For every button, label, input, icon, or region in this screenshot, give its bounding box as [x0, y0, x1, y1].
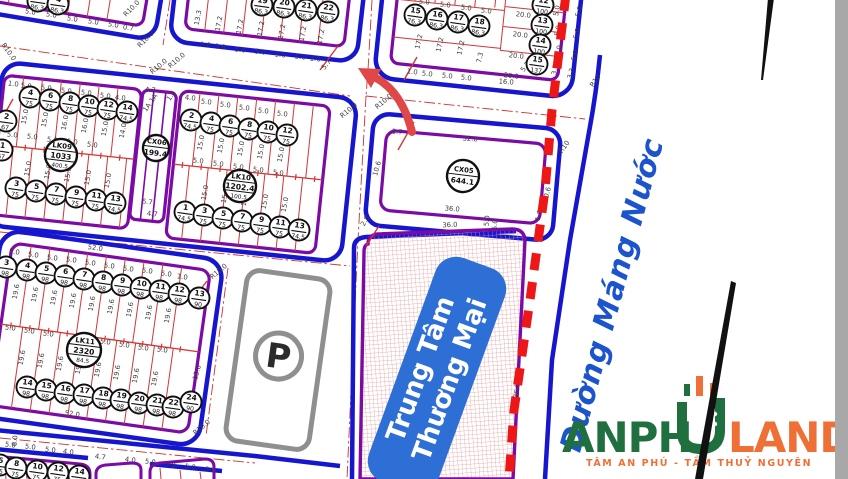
dimension-label: 20.0: [512, 30, 528, 40]
dimension-label: 5.0: [156, 345, 168, 354]
dimension-label: 16.0: [60, 115, 71, 131]
plot-circle: 1576.3: [403, 3, 427, 27]
svg-text:21: 21: [301, 0, 313, 10]
svg-text:67: 67: [1, 124, 10, 132]
svg-text:98: 98: [134, 406, 143, 414]
svg-text:75: 75: [103, 112, 112, 120]
dimension-label: 1A 1A: [141, 92, 159, 113]
dimension-label: 36.0: [442, 221, 458, 230]
dimension-label: 15.0: [196, 135, 207, 151]
dimension-label: 4.7: [146, 209, 158, 218]
dimension-label: 15.0: [256, 144, 267, 160]
dimension-label: 6.7: [141, 197, 153, 206]
dimension-label: 5.0: [252, 165, 264, 174]
svg-text:98: 98: [1, 270, 10, 278]
dimension-label: 5.0: [491, 219, 500, 230]
svg-text:75: 75: [51, 197, 60, 205]
dimension-label: 5.0: [46, 253, 58, 262]
dimension-label: 1.0: [309, 54, 321, 63]
dimension-label: 19.6: [144, 305, 155, 321]
dimension-label: 5.0: [122, 264, 134, 273]
dimension-label: 5.0: [65, 255, 77, 264]
svg-text:15: 15: [410, 5, 422, 15]
svg-text:74.5: 74.5: [291, 233, 306, 242]
svg-text:24: 24: [186, 392, 198, 402]
svg-text:75: 75: [225, 129, 234, 137]
dimension-label: 15.0: [103, 173, 114, 189]
plot-circle: 975: [64, 185, 88, 209]
plot-circle: 1886.3: [467, 14, 491, 38]
svg-text:13: 13: [294, 220, 306, 230]
dimension-label: R10.0: [122, 0, 142, 18]
dimension-label: 5.0: [8, 247, 20, 256]
svg-text:75: 75: [199, 218, 208, 226]
black-line-marks: [695, 0, 774, 479]
dimension-label: 5.0: [574, 5, 585, 18]
plot-circle: 1786.3: [446, 10, 470, 34]
dimension-label: 19.6: [11, 284, 22, 300]
svg-text:14: 14: [535, 35, 547, 45]
svg-text:20: 20: [134, 393, 146, 403]
svg-text:75: 75: [237, 224, 246, 232]
svg-text:13: 13: [537, 15, 549, 25]
plot-circle: 2086.3: [272, 0, 296, 19]
dimension-label: 5.0: [274, 50, 286, 59]
dimension-label: 5.0: [219, 100, 231, 109]
dimension-label: 17.2: [298, 26, 309, 42]
plot-circle: 2186.3: [294, 0, 318, 22]
dimension-label: 5.0: [441, 71, 453, 80]
svg-text:21: 21: [152, 395, 164, 405]
svg-text:74.5: 74.5: [177, 215, 192, 224]
svg-text:15: 15: [41, 380, 53, 390]
dimension-label: 5.0: [42, 329, 54, 338]
svg-text:10: 10: [136, 278, 148, 288]
svg-text:98: 98: [22, 273, 31, 281]
dimension-label: 5.0: [572, 27, 583, 40]
dimension-label: 17.2: [316, 29, 327, 45]
dimension-label: 15.0: [20, 109, 31, 125]
svg-text:98: 98: [98, 285, 107, 293]
svg-text:13: 13: [194, 288, 206, 298]
dimension-label: 15.0: [200, 185, 211, 201]
svg-text:75: 75: [71, 200, 80, 208]
svg-text:17: 17: [79, 385, 91, 395]
dimension-label: 19.6: [49, 290, 60, 306]
svg-text:98: 98: [117, 288, 126, 296]
dimension-label: 5.0: [160, 269, 172, 278]
dimension-label: 17.2: [214, 16, 225, 32]
plot-circle: 1275: [275, 123, 299, 147]
dimension-label: 14.0: [118, 123, 129, 139]
dimension-label: 5.0: [144, 457, 156, 466]
svg-text:10: 10: [263, 122, 275, 132]
svg-text:98: 98: [152, 408, 161, 416]
dimension-label: 15.0: [236, 141, 247, 157]
dimension-label: 15.0: [83, 170, 94, 186]
logo-text-land: LAND: [728, 413, 848, 462]
dimension-label: 16.0: [80, 118, 91, 134]
dimension-label: 5.0: [421, 69, 433, 78]
site-plan-map: P 5.05.05.05.05.00.7R10.0R10.0R10.0R10.0…: [0, 0, 848, 479]
dimension-label: 5.0: [84, 258, 96, 267]
dimension-label: 1.0: [199, 40, 211, 49]
svg-text:22: 22: [323, 2, 335, 12]
svg-text:75: 75: [256, 227, 265, 235]
dimension-label: 1.0: [176, 272, 188, 281]
dimension-label: 32.0: [462, 134, 478, 143]
svg-text:75: 75: [206, 126, 215, 134]
svg-text:75: 75: [263, 135, 272, 143]
dimension-label: R10.0: [136, 30, 156, 50]
dimension-label: 19.6: [68, 293, 79, 309]
svg-text:75: 75: [31, 194, 40, 202]
svg-text:18: 18: [98, 388, 110, 398]
dimension-label: 19.6: [30, 287, 41, 303]
svg-text:75: 75: [218, 221, 227, 229]
svg-text:75: 75: [32, 474, 41, 479]
svg-text:14: 14: [74, 466, 86, 476]
dimension-label: 36.0: [444, 204, 460, 213]
dimension-label: 5.0: [23, 326, 35, 335]
svg-text:75: 75: [11, 471, 20, 479]
plot-circle: 1986.3: [250, 0, 274, 17]
svg-text:75: 75: [25, 100, 34, 108]
svg-text:75: 75: [65, 106, 74, 114]
dimension-label: 17.2: [414, 33, 425, 49]
svg-text:75: 75: [282, 138, 291, 146]
svg-text:75: 75: [84, 109, 93, 117]
dimension-label: 4.7: [94, 452, 106, 461]
svg-text:18: 18: [474, 16, 486, 26]
svg-text:98: 98: [79, 398, 88, 406]
svg-text:86.3: 86.3: [450, 25, 465, 34]
svg-text:10: 10: [84, 96, 96, 106]
svg-text:13: 13: [110, 193, 122, 203]
street-name-text: Đường Máng Nước: [553, 134, 671, 457]
dimension-label: 5.0: [164, 460, 176, 469]
svg-text:15: 15: [532, 54, 544, 64]
svg-text:86.3: 86.3: [298, 13, 313, 22]
svg-text:12: 12: [53, 463, 65, 473]
plot-circle: 398: [0, 255, 18, 279]
plot-circle: 274.5: [179, 108, 203, 132]
dimension-label: 19.6: [163, 308, 174, 324]
dimension-label: 19.6: [131, 368, 142, 384]
dimension-label: 5.0: [86, 140, 98, 149]
plot-circle: 267: [0, 109, 18, 133]
dimension-label: 15.0: [260, 194, 271, 210]
dimension-label: 5.0: [192, 156, 204, 165]
dimension-label: 17.2: [235, 19, 246, 35]
svg-text:86.3: 86.3: [276, 10, 291, 19]
plot-circle: 575: [24, 179, 48, 203]
dimension-label: 13.3: [193, 10, 204, 26]
dimension-label: 5.0: [460, 3, 472, 12]
dimension-label: 5.0: [26, 132, 38, 141]
block-circle-cx06: CX06199.4: [142, 134, 171, 163]
dimension-label: 5.0: [257, 106, 269, 115]
svg-text:98: 98: [168, 410, 177, 418]
plot-circle: 1686.3: [425, 7, 449, 31]
dimension-label: 5.0: [234, 45, 246, 54]
dimension-label: 5.0: [66, 14, 78, 24]
dimension-label: 5.0: [44, 445, 56, 454]
dimension-label: 5.0: [214, 42, 226, 51]
svg-text:74.5: 74.5: [119, 115, 134, 124]
plot-circle: 2286.3: [316, 0, 340, 24]
dimension-label: 5.0: [87, 17, 99, 27]
dimension-label: 4.0: [124, 455, 136, 464]
svg-text:90: 90: [186, 405, 195, 413]
parking-block: P: [224, 269, 331, 451]
dimension-label: 5.0: [103, 261, 115, 270]
svg-text:75: 75: [11, 191, 20, 199]
svg-text:98: 98: [60, 396, 69, 404]
dimension-label: 15.6: [191, 364, 203, 381]
svg-text:86.3: 86.3: [254, 8, 269, 17]
dimension-label: 4.7: [144, 85, 156, 94]
svg-text:86.3: 86.3: [471, 29, 486, 38]
svg-text:12: 12: [103, 99, 115, 109]
dimension-label: 19.6: [125, 302, 136, 318]
dimension-label: 5.0: [276, 109, 288, 118]
dimension-label: 0.7: [122, 23, 134, 33]
dimension-label: 5.0: [4, 323, 16, 332]
svg-text:16: 16: [432, 9, 444, 19]
dimension-label: 5.0: [254, 47, 266, 56]
plot-circle: 15137: [525, 52, 549, 76]
dimension-label: 2.8: [359, 214, 371, 227]
dimension-label: 5.0: [570, 49, 581, 62]
dimension-label: 5.0: [439, 0, 451, 9]
dimension-label: 5.0: [118, 340, 130, 349]
dimension-label: 5.0: [460, 73, 472, 82]
dimension-label: 52.0: [87, 243, 103, 253]
dimension-label: 19.6: [55, 356, 66, 372]
dimension-label: 5.0: [137, 343, 149, 352]
dimension-label: R10.0: [0, 41, 18, 62]
dimension-label: 19.6: [17, 350, 28, 366]
dimension-label: 5.0: [27, 250, 39, 259]
svg-text:12: 12: [282, 125, 294, 135]
svg-text:74.5: 74.5: [183, 123, 198, 132]
dimension-label: 4.0: [184, 93, 196, 102]
dimension-label: 5.0: [294, 52, 306, 61]
dimension-label: 5.0: [238, 103, 250, 112]
svg-text:22: 22: [168, 397, 180, 407]
dimension-label: 17.2: [277, 24, 288, 40]
svg-text:14: 14: [22, 377, 34, 387]
dimension-label: 15.0: [23, 161, 34, 177]
svg-text:16: 16: [60, 383, 72, 393]
svg-text:90: 90: [194, 301, 203, 309]
dimension-label: 5.0: [141, 266, 153, 275]
dimension-label: 1.0: [406, 67, 418, 76]
plot-circle: 13100: [530, 13, 554, 37]
dimension-label: 4.0: [62, 447, 74, 456]
dimension-label: 15.0: [100, 121, 111, 137]
dimension-label: 5.0: [184, 462, 196, 471]
plot-circle: 1298: [167, 282, 191, 306]
dimension-label: 5.0: [204, 465, 216, 474]
dimension-label: 5.0: [200, 97, 212, 106]
svg-text:98: 98: [174, 297, 183, 305]
dimension-label: R10.0: [149, 57, 169, 76]
street-name: Đường Máng Nước: [553, 134, 671, 457]
svg-text:10: 10: [32, 461, 44, 471]
dimension-label: 15.0: [276, 147, 287, 163]
svg-text:11: 11: [155, 281, 167, 291]
svg-text:14: 14: [122, 102, 134, 112]
dimension-label: 5.0: [212, 159, 224, 168]
svg-text:86.3: 86.3: [429, 22, 444, 31]
svg-text:98: 98: [79, 282, 88, 290]
dimension-label: 17.2: [256, 21, 267, 37]
dimension-label: 5.0: [4, 440, 16, 449]
dimension-label: 17.2: [435, 36, 446, 52]
svg-text:98: 98: [41, 393, 50, 401]
dimension-label: 19.6: [150, 371, 161, 387]
svg-text:12: 12: [174, 284, 186, 294]
dimension-label: 20.0: [508, 51, 524, 61]
dimension-label: 5.7: [391, 128, 402, 137]
dimension-label: 15.0: [280, 197, 291, 213]
dimension-label: R10.0: [167, 51, 187, 70]
svg-text:98: 98: [155, 294, 164, 302]
svg-text:19: 19: [116, 390, 128, 400]
dimension-label: 5.0: [107, 20, 119, 30]
cadastral-plan-svg: P 5.05.05.05.05.00.7R10.0R10.0R10.0R10.0…: [0, 0, 848, 479]
svg-text:75: 75: [45, 103, 54, 111]
dimension-label: 15.0: [216, 138, 227, 154]
svg-text:98: 98: [22, 390, 31, 398]
svg-text:11: 11: [91, 190, 103, 200]
svg-text:98: 98: [116, 403, 125, 411]
svg-text:75: 75: [275, 230, 284, 238]
svg-text:86.3: 86.3: [320, 15, 335, 24]
dimension-label: R10: [588, 73, 602, 89]
svg-text:17: 17: [453, 12, 465, 22]
dimension-label: 19.6: [36, 353, 47, 369]
dimension-label: 17.2: [456, 39, 467, 55]
plot-circle: 1474.5: [115, 100, 139, 124]
dimension-label: 19.6: [106, 299, 117, 315]
svg-text:75: 75: [91, 203, 100, 211]
svg-text:76.3: 76.3: [407, 18, 422, 27]
dimension-label: 15.0: [40, 112, 51, 128]
svg-text:74.5: 74.5: [107, 206, 122, 215]
dimension-label: 10.6: [371, 160, 383, 177]
scrollbar[interactable]: [835, 0, 848, 479]
svg-text:11: 11: [275, 217, 287, 227]
logo-text-anph: ANPH: [562, 413, 692, 462]
svg-text:98: 98: [41, 276, 50, 284]
dimension-label: 19.6: [87, 296, 98, 312]
plot-circle: 1374.5: [287, 218, 311, 242]
svg-text:98: 98: [60, 279, 69, 287]
svg-text:75: 75: [244, 132, 253, 140]
dimension-label: 19.6: [112, 365, 123, 381]
dimension-label: 7.3: [475, 51, 485, 63]
dimension-label: 1.0: [7, 79, 19, 88]
svg-text:98: 98: [98, 401, 107, 409]
dimension-label: 5.0: [480, 6, 492, 15]
svg-text:98: 98: [136, 291, 145, 299]
dimension-label: 5.0: [24, 442, 36, 451]
dimension-label: 20.0: [515, 10, 531, 20]
dimension-label: 5.0: [272, 168, 284, 177]
